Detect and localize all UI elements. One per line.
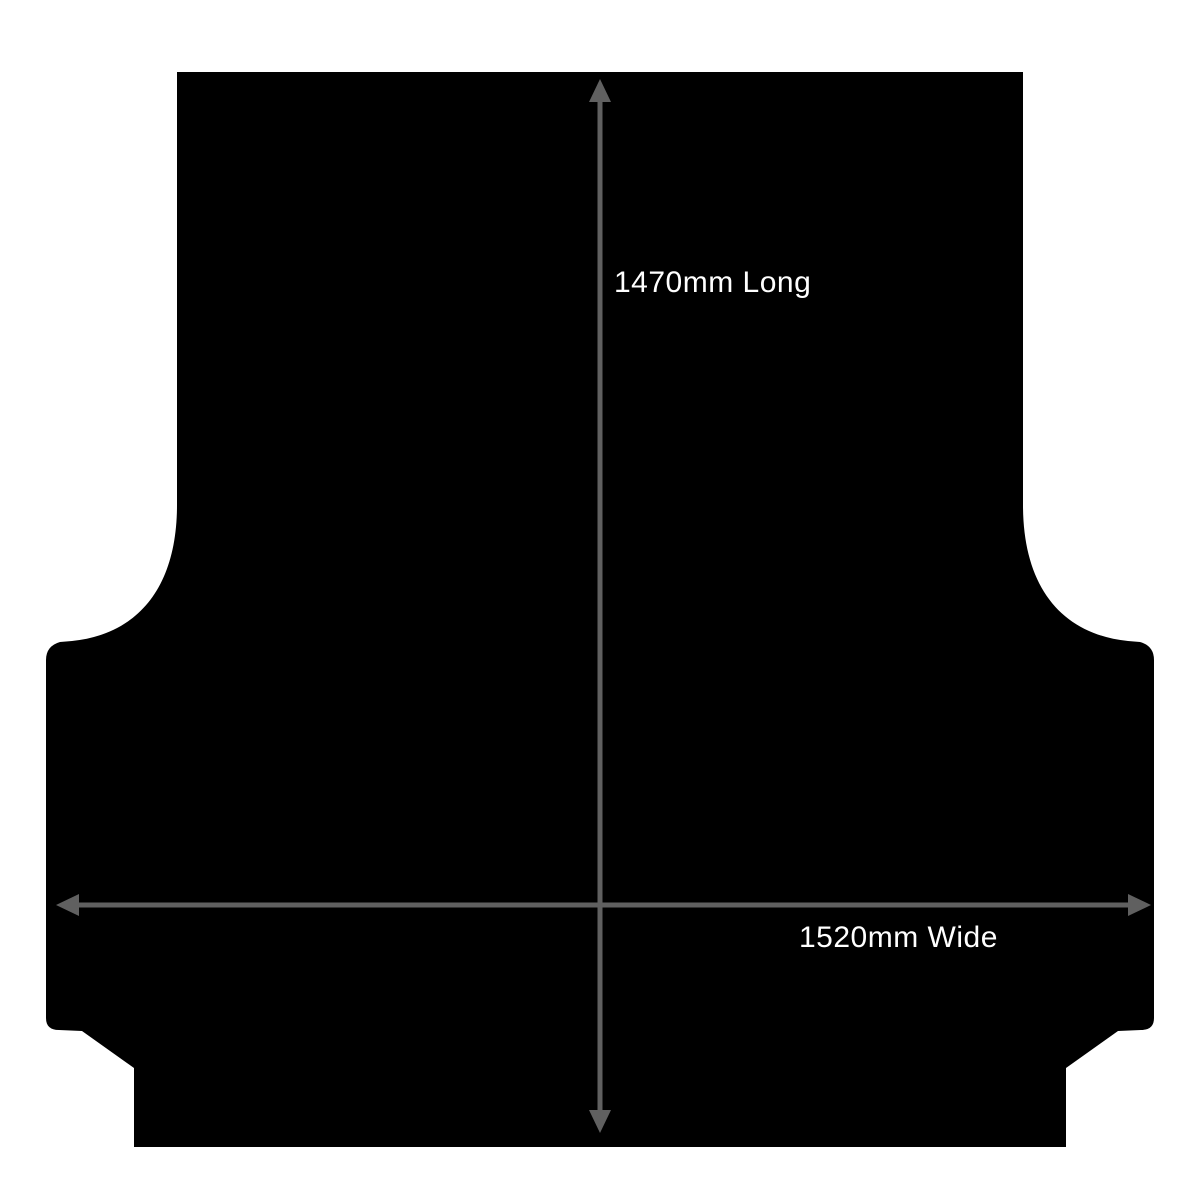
length-dimension-label: 1470mm Long: [614, 266, 811, 300]
dimension-diagram: [0, 0, 1200, 1200]
product-image: 1470mm Long 1520mm Wide: [0, 0, 1200, 1200]
width-dimension-label: 1520mm Wide: [799, 921, 998, 955]
